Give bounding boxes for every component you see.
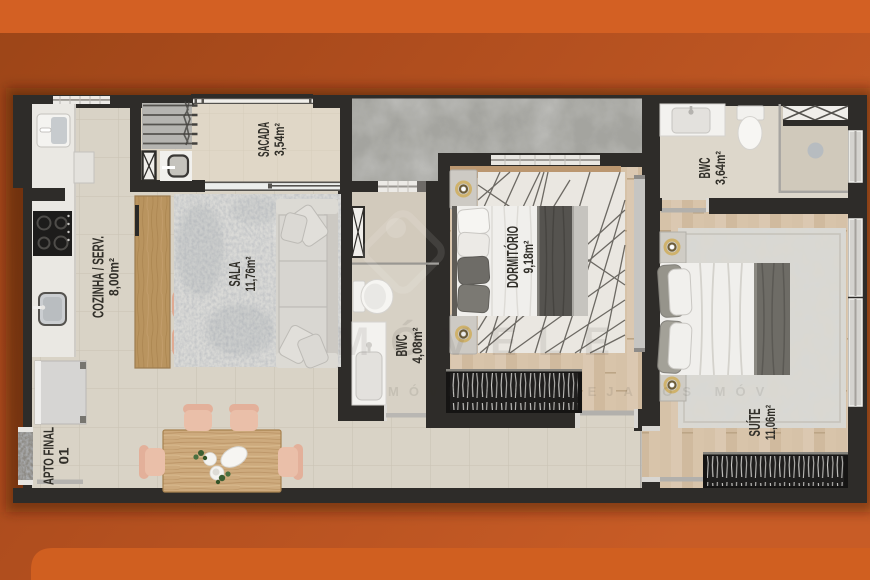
svg-text:3,54m²: 3,54m² [271,123,287,156]
svg-text:3,64m²: 3,64m² [712,151,728,185]
svg-text:9,18m²: 9,18m² [520,240,536,273]
svg-text:MÓVEIS PLANEJADOS MÓV: MÓVEIS PLANEJADOS MÓV [388,384,774,399]
svg-text:MÓVELE: MÓVELE [336,318,631,364]
svg-text:11,06m²: 11,06m² [762,405,778,440]
svg-text:01: 01 [56,447,72,464]
svg-text:11,76m²: 11,76m² [242,256,258,291]
svg-text:8,00m²: 8,00m² [106,258,122,296]
